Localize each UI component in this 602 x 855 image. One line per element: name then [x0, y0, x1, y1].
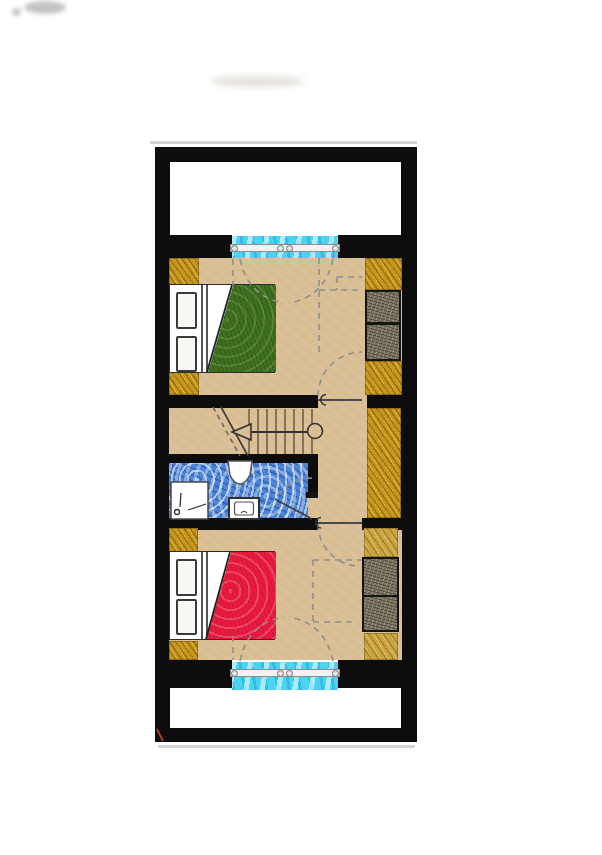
- top-bedroom-bottom-wall-right: [362, 395, 402, 408]
- bottom-window-track: [230, 669, 340, 677]
- top-bedroom-top-wall-left: [155, 235, 232, 258]
- bottom-bedroom-bottom-wall-left: [155, 660, 232, 688]
- green-blanket: [206, 285, 276, 372]
- headboard-line: [201, 552, 203, 639]
- headboard-line: [206, 552, 208, 639]
- top-bedroom-dresser: [365, 290, 401, 361]
- top-bedroom-bed: [169, 284, 275, 373]
- hallway-storage-closet: [367, 408, 401, 518]
- red-blanket: [206, 552, 276, 639]
- bottom-bedroom-doorway-floor: [318, 518, 362, 530]
- dresser-drawer-divider: [367, 322, 399, 325]
- bottom-bedroom-dresser: [362, 557, 399, 632]
- window-hinge-icon: [231, 670, 238, 677]
- top-bedroom-wardrobe-bottom-right: [365, 361, 402, 395]
- top-window-track: [230, 244, 340, 252]
- dresser-drawer-divider: [364, 595, 397, 598]
- bottom-balcony-floor: [170, 688, 401, 728]
- pencil-smudge: [12, 8, 21, 16]
- bathroom-doorway-floor: [308, 498, 318, 518]
- top-bedroom-wardrobe-top-left: [169, 258, 199, 285]
- window-hinge-icon: [332, 670, 339, 677]
- top-bedroom-wardrobe-top-right: [365, 258, 402, 290]
- window-hinge-icon: [277, 245, 284, 252]
- headboard-line: [201, 285, 203, 372]
- bottom-bedroom-wardrobe-top-left: [169, 528, 198, 552]
- window-hinge-icon: [332, 245, 339, 252]
- window-hinge-icon: [231, 245, 238, 252]
- top-balcony-top-wall: [155, 147, 417, 162]
- top-balcony-floor: [170, 162, 401, 235]
- bathroom-right-wall: [308, 454, 318, 498]
- pillow: [176, 599, 197, 635]
- right-outer-wall: [401, 147, 417, 742]
- top-bedroom-bottom-wall-left: [155, 395, 318, 408]
- faint-guide-line-top: [150, 141, 417, 144]
- staircase-floor: [169, 408, 318, 454]
- bottom-bedroom-bottom-wall-right: [338, 660, 402, 688]
- top-bedroom-top-wall-right: [338, 235, 402, 258]
- pencil-smudge: [210, 76, 305, 87]
- headboard-line: [206, 285, 208, 372]
- bottom-bedroom-wardrobe-bottom-left: [169, 641, 198, 660]
- bottom-balcony-bottom-wall: [155, 728, 417, 742]
- bottom-bedroom-bed: [169, 551, 275, 640]
- pillow: [176, 292, 197, 329]
- pencil-smudge: [24, 1, 66, 14]
- floor-plan-canvas: [0, 0, 602, 855]
- bathroom-floor: [169, 463, 308, 518]
- faint-guide-line-bottom: [158, 745, 415, 748]
- hallway-floor: [318, 395, 367, 518]
- window-hinge-icon: [277, 670, 284, 677]
- bottom-bedroom-wardrobe-bottom-right: [364, 633, 398, 660]
- bottom-bedroom-wardrobe-top-right: [364, 528, 398, 557]
- pillow: [176, 559, 197, 596]
- stairs-bathroom-divider-wall: [155, 454, 318, 463]
- pillow: [176, 336, 197, 372]
- window-hinge-icon: [286, 670, 293, 677]
- window-hinge-icon: [286, 245, 293, 252]
